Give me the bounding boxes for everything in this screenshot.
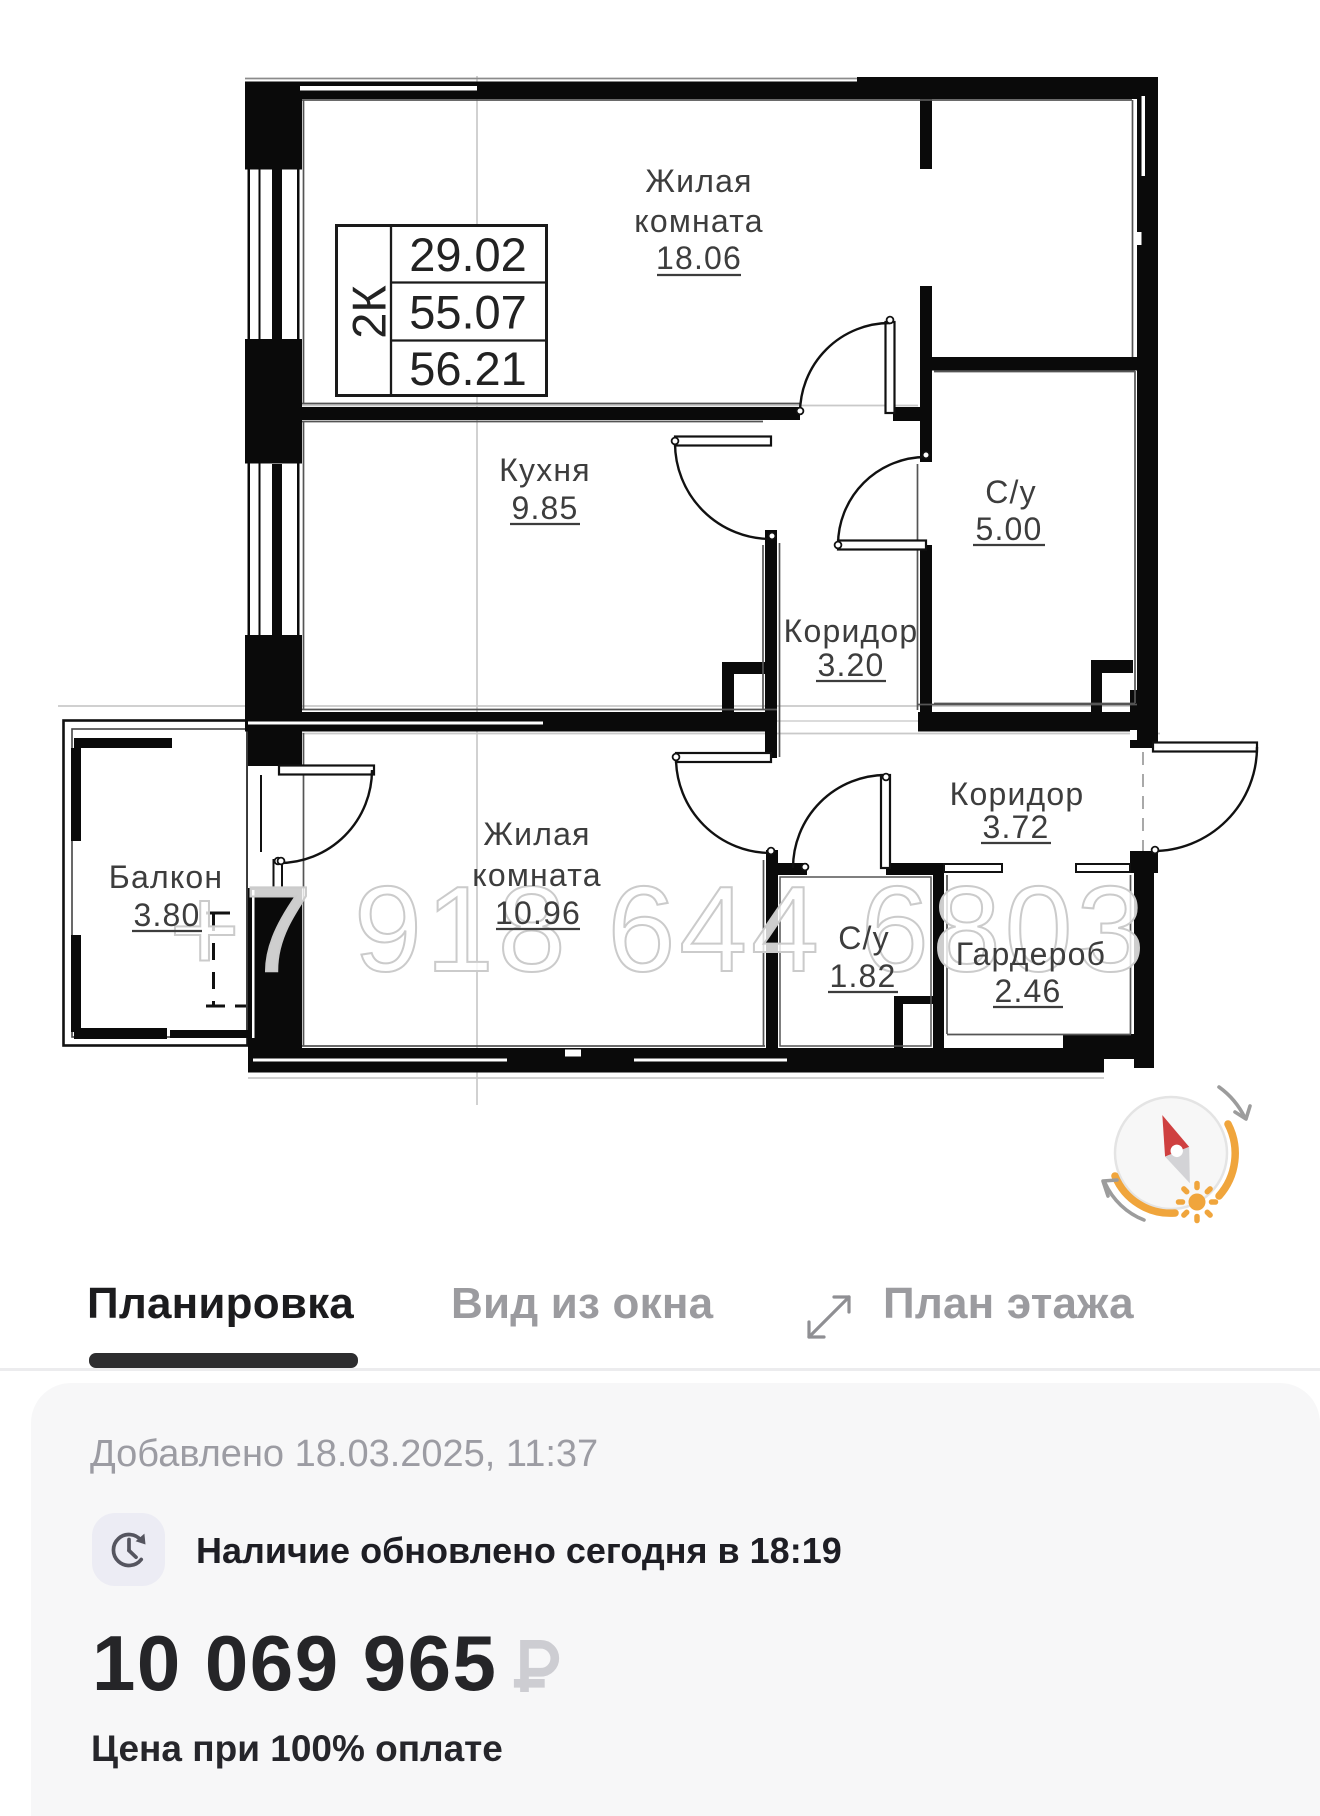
svg-text:29.02: 29.02 [409, 228, 527, 281]
svg-text:9.85: 9.85 [511, 490, 578, 526]
svg-text:18.06: 18.06 [656, 240, 742, 276]
svg-text:2К: 2К [343, 285, 396, 339]
svg-text:3.72: 3.72 [982, 809, 1049, 845]
svg-text:С/у: С/у [838, 920, 890, 956]
svg-text:5.00: 5.00 [975, 511, 1042, 547]
svg-text:Жилая: Жилая [645, 163, 752, 199]
svg-text:56.21: 56.21 [409, 342, 527, 395]
svg-text:Гардероб: Гардероб [956, 936, 1106, 972]
svg-text:3.20: 3.20 [817, 647, 884, 683]
svg-text:3.80: 3.80 [133, 897, 200, 933]
svg-text:2.46: 2.46 [994, 973, 1061, 1009]
svg-text:Жилая: Жилая [483, 816, 590, 852]
svg-text:Кухня: Кухня [499, 452, 591, 488]
svg-text:1.82: 1.82 [829, 958, 896, 994]
svg-text:С/у: С/у [985, 474, 1037, 510]
svg-text:комната: комната [472, 857, 601, 893]
svg-text:10.96: 10.96 [495, 895, 581, 931]
svg-text:Балкон: Балкон [109, 859, 224, 895]
svg-text:55.07: 55.07 [409, 286, 527, 339]
svg-text:комната: комната [634, 203, 763, 239]
svg-text:Коридор: Коридор [950, 776, 1085, 812]
svg-text:Коридор: Коридор [784, 613, 919, 649]
